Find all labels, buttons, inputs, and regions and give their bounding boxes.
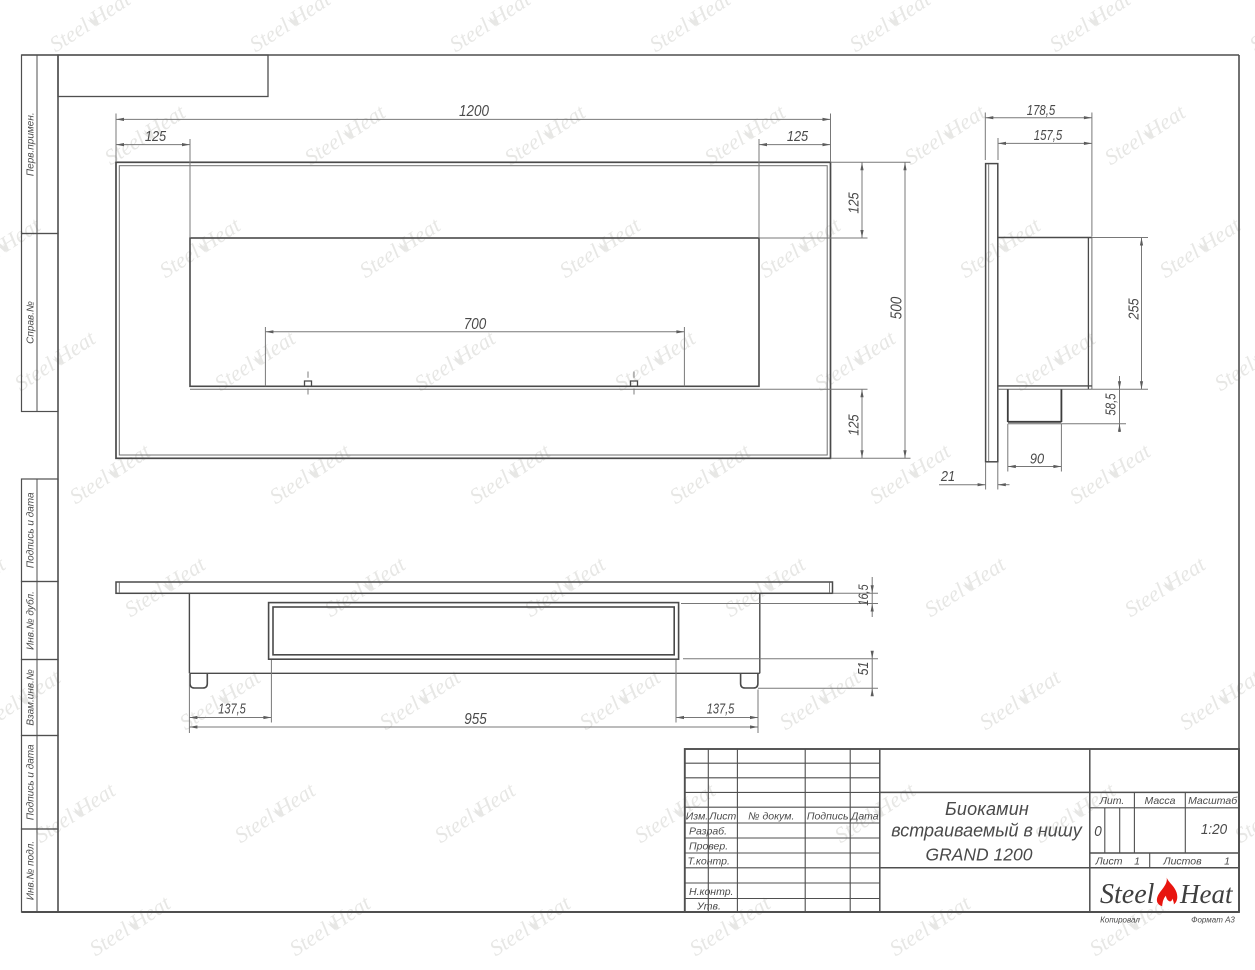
svg-text:137,5: 137,5 xyxy=(707,700,735,717)
svg-text:Подпись и дата: Подпись и дата xyxy=(25,492,36,568)
svg-text:700: 700 xyxy=(464,316,486,333)
svg-text:Биокамин: Биокамин xyxy=(945,799,1029,819)
svg-text:№ докум.: № докум. xyxy=(748,811,794,823)
svg-text:Steel Heat: Steel Heat xyxy=(1245,0,1255,57)
svg-text:Перв.примен.: Перв.примен. xyxy=(25,112,36,176)
svg-text:Справ.№: Справ.№ xyxy=(25,301,36,344)
svg-text:встраиваемый в нишу: встраиваемый в нишу xyxy=(891,821,1082,841)
svg-text:125: 125 xyxy=(145,127,166,144)
svg-text:Steel: Steel xyxy=(1100,879,1155,910)
svg-text:Масштаб: Масштаб xyxy=(1188,795,1238,807)
svg-text:Т.контр.: Т.контр. xyxy=(688,856,730,868)
svg-text:0: 0 xyxy=(1094,823,1102,840)
svg-text:1:20: 1:20 xyxy=(1201,821,1227,838)
svg-text:Взам.инв.№: Взам.инв.№ xyxy=(25,669,36,725)
svg-text:Разраб.: Разраб. xyxy=(689,826,727,838)
svg-text:955: 955 xyxy=(464,711,487,728)
svg-text:125: 125 xyxy=(844,414,861,435)
svg-text:157,5: 157,5 xyxy=(1034,127,1063,144)
svg-text:Лист: Лист xyxy=(1094,856,1122,868)
svg-text:Подпись: Подпись xyxy=(807,811,849,823)
svg-text:1200: 1200 xyxy=(459,103,489,120)
svg-text:Инв.№ подл.: Инв.№ подл. xyxy=(25,841,36,900)
svg-text:90: 90 xyxy=(1030,449,1044,466)
svg-text:Лист: Лист xyxy=(708,811,736,823)
svg-text:Дата: Дата xyxy=(850,811,879,823)
svg-text:58,5: 58,5 xyxy=(1102,393,1119,416)
svg-text:Steel Heat: Steel Heat xyxy=(1230,777,1255,848)
svg-text:Steel Heat: Steel Heat xyxy=(445,0,536,57)
svg-text:Лит.: Лит. xyxy=(1099,795,1125,807)
svg-text:Листов: Листов xyxy=(1162,856,1202,868)
svg-text:Масса: Масса xyxy=(1144,795,1175,807)
svg-text:1: 1 xyxy=(1134,856,1140,868)
svg-text:125: 125 xyxy=(787,127,808,144)
svg-text:Изм.: Изм. xyxy=(686,811,708,823)
svg-text:Steel Heat: Steel Heat xyxy=(0,212,45,283)
svg-text:Steel Heat: Steel Heat xyxy=(45,0,136,57)
svg-text:Steel Heat: Steel Heat xyxy=(0,551,10,622)
svg-text:1: 1 xyxy=(1224,856,1230,868)
svg-text:Steel Heat: Steel Heat xyxy=(845,0,936,57)
svg-text:16,5: 16,5 xyxy=(856,583,872,605)
svg-text:Формат А3: Формат А3 xyxy=(1191,916,1235,925)
svg-text:Копировал: Копировал xyxy=(1100,916,1140,925)
svg-text:GRAND 1200: GRAND 1200 xyxy=(926,844,1033,864)
svg-text:137,5: 137,5 xyxy=(218,700,246,717)
svg-text:Steel Heat: Steel Heat xyxy=(245,0,336,57)
svg-text:Н.контр.: Н.контр. xyxy=(689,886,733,898)
svg-text:Steel Heat: Steel Heat xyxy=(645,0,736,57)
svg-text:21: 21 xyxy=(940,467,955,484)
svg-text:Утв.: Утв. xyxy=(696,901,721,913)
svg-text:Steel Heat: Steel Heat xyxy=(1210,325,1255,396)
svg-text:Steel Heat: Steel Heat xyxy=(1045,0,1136,57)
svg-text:Подпись и дата: Подпись и дата xyxy=(25,744,36,820)
svg-text:178,5: 178,5 xyxy=(1027,101,1056,118)
svg-text:51: 51 xyxy=(855,662,871,676)
svg-text:Steel Heat: Steel Heat xyxy=(1175,664,1255,735)
svg-text:Инв.№ дубл.: Инв.№ дубл. xyxy=(24,591,36,650)
svg-text:500: 500 xyxy=(889,297,906,319)
svg-text:Провер.: Провер. xyxy=(689,841,728,853)
svg-text:125: 125 xyxy=(844,192,861,213)
svg-text:255: 255 xyxy=(1124,298,1141,320)
svg-text:Heat: Heat xyxy=(1179,879,1234,909)
